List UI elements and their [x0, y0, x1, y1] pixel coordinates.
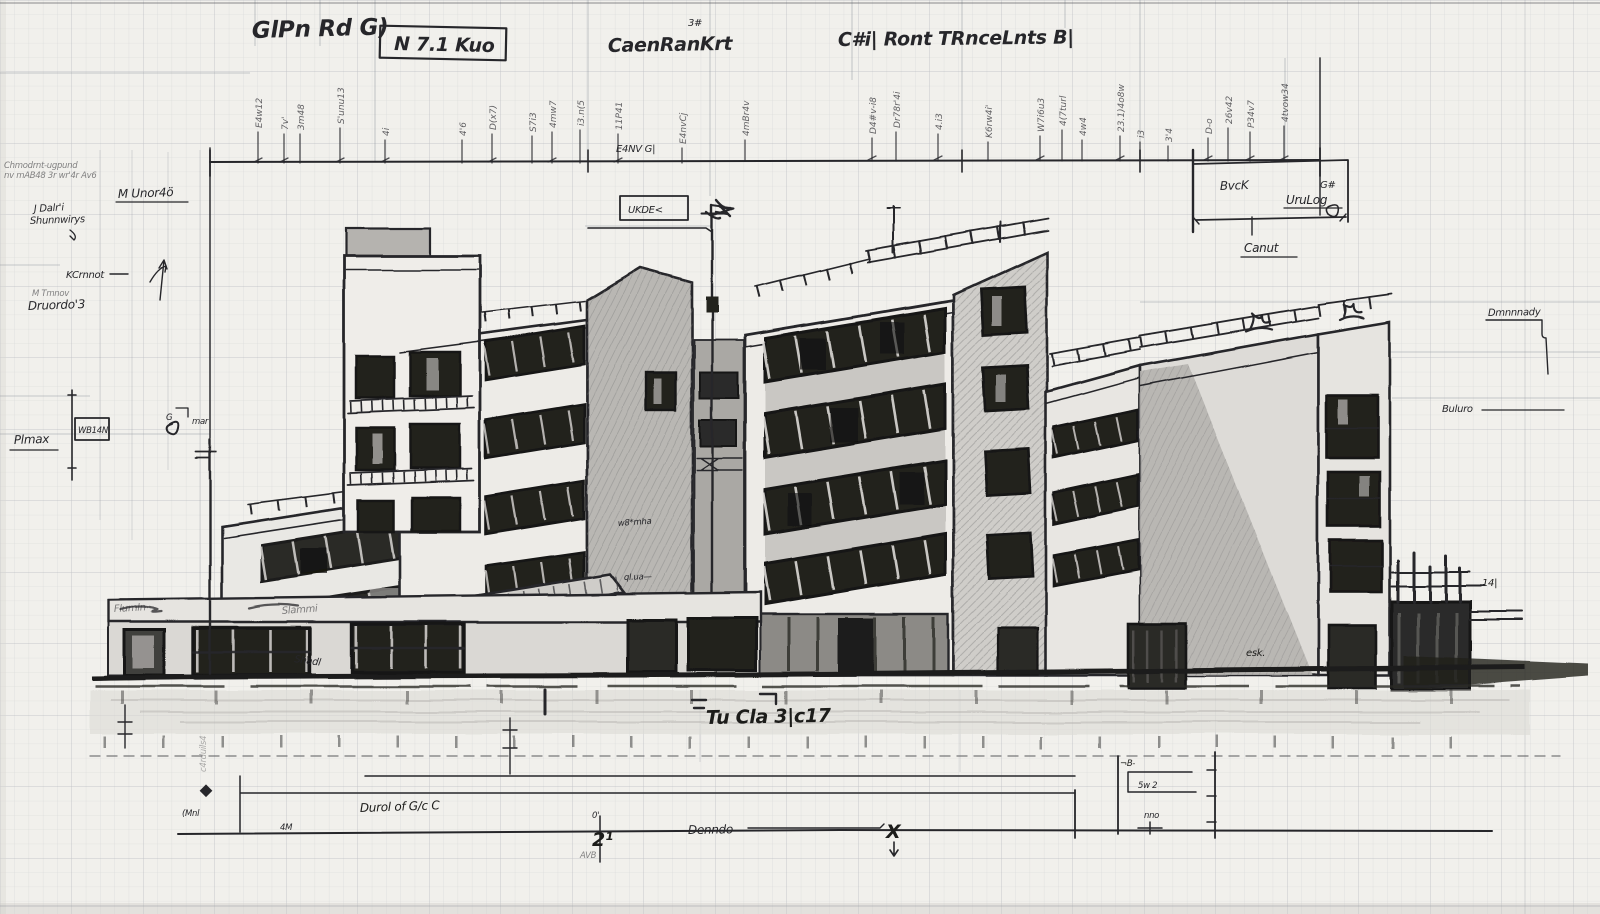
window-pane: [654, 378, 662, 404]
dim-tick-label: W7i6u3: [1037, 97, 1047, 132]
corner-mark: G#: [1320, 180, 1336, 191]
wb-box-mark: G: [166, 413, 173, 423]
x-mark: X: [885, 821, 902, 843]
sheet-title-center: CaenRanKrt: [608, 33, 734, 57]
vertical-scrawl: c4rduils4: [199, 736, 209, 772]
tower-window: [358, 500, 394, 532]
bracket-mark-1: 5w 2: [1138, 781, 1157, 791]
dim-tick-label: E4w12: [255, 98, 265, 128]
plmax-label: Plmax: [14, 432, 51, 447]
dim-tick-label: 4w4: [1079, 117, 1089, 136]
dim-tick-label: 4'6: [459, 122, 469, 136]
dim-tick-label: K6rw4i': [985, 105, 995, 138]
bracket-top-mark: ¬B-: [1120, 759, 1135, 769]
dim-tick-label: 4mBr4v: [742, 100, 752, 136]
window-pane: [372, 434, 382, 464]
window-pane: [992, 296, 1002, 326]
dim-tick-label: 3m48: [297, 104, 307, 130]
zero-mark: 0': [592, 811, 599, 821]
dim-tick-label: 11P41: [615, 102, 625, 130]
canut-label: Canut: [1244, 241, 1280, 255]
building-d-left-windows: [1054, 410, 1138, 586]
dim-tick-label: i3: [1137, 129, 1147, 138]
esk-scrawl: esk.: [1246, 648, 1265, 659]
left-note-line1: Chmodrnt-ugpund: [4, 161, 78, 171]
dim-tick-label: P34v7: [1247, 100, 1257, 128]
e4nvg-label: E4NV G|: [616, 144, 655, 155]
scale-box-label: N 7.1 Kuo: [394, 33, 495, 57]
window-pane: [788, 494, 812, 526]
dim-tick-label: 3'4: [1165, 128, 1175, 142]
sheet-edge-left: [0, 0, 6, 914]
dim-tick-label: i3.n(5: [577, 100, 587, 126]
building-b-tower-windows: [348, 352, 474, 532]
side-door: [998, 628, 1038, 674]
blueprint-sheet: E4w12 7v' 3m48 S'unu13 4i 4'6 D(x7) S7i3…: [0, 0, 1600, 914]
dim-tick-label: S'unu13: [337, 87, 347, 124]
tower-window: [356, 356, 394, 398]
window-pane: [830, 408, 858, 442]
note-box-label: UKDE<: [628, 205, 663, 216]
denndo-label: Denndo: [688, 822, 733, 837]
wb-box-side: mar: [192, 417, 209, 427]
dim-tick-label: 4.i3: [935, 113, 945, 130]
urulog-label: UruLog: [1286, 193, 1328, 207]
dmn-label: Dmnnnady: [1488, 307, 1542, 319]
unit-label: M Unor4ö: [118, 185, 174, 201]
street-label: Tu Cla 3|c17: [706, 705, 832, 729]
side-window: [987, 533, 1033, 579]
dim-tick-label: 4tvow34: [1281, 83, 1291, 122]
signature-line2: Shunnwirys: [30, 214, 85, 227]
bracket-mark-2: nno: [1144, 811, 1159, 821]
wb-box-label: WB14N: [78, 426, 109, 436]
dim-tick-label: D(x7): [489, 105, 499, 130]
dim-tick-label: 26v42: [1225, 95, 1235, 124]
window-pane: [900, 472, 924, 504]
duct-label: Durol of G/c C: [360, 798, 441, 815]
window-pane: [1360, 476, 1370, 496]
dim-tick-label: S7i3: [529, 112, 539, 132]
side-window: [985, 449, 1031, 495]
dim-left-mark: 4M: [280, 823, 293, 833]
sheet-title-right: C#i| Ront TRnceLnts B|: [838, 27, 1074, 51]
qlua-scrawl: ql.ua—: [624, 572, 653, 583]
building-c-door: [838, 618, 874, 674]
buluro-label: Buluro: [1442, 404, 1473, 415]
dim-mid-mark: 2¹: [592, 829, 613, 851]
dim-tick-label: D-o: [1205, 118, 1215, 134]
window-pane: [1338, 400, 1348, 424]
dim-tick-label: Dr78r'4i: [893, 91, 903, 128]
avb-mark: AVB: [579, 851, 597, 861]
building-d-right-windows: [1326, 396, 1382, 592]
sheet-title-center-sup: 3#: [688, 18, 702, 29]
window-pane: [300, 548, 326, 574]
dim-tick-label: 23.1)4o8w: [1117, 83, 1127, 132]
side-window: [1328, 472, 1380, 526]
sheet-edge-bottom: [0, 903, 1600, 914]
flumln-scrawl: Flumln: [114, 602, 146, 615]
dim-tick-label: 4i: [382, 127, 392, 136]
dim-tick-label: 4mw7: [549, 100, 559, 128]
window-pane: [426, 358, 438, 390]
dim-tick-label: D4#v-i8: [869, 97, 879, 134]
gap-unit: [700, 372, 738, 398]
shop-window: [688, 618, 756, 670]
kc-label: KCrnnot: [66, 270, 105, 281]
sheet-title-left: GlPn Rd G): [251, 14, 388, 44]
window-pane: [880, 322, 904, 354]
building-d-door-right: [1328, 626, 1376, 688]
tower-window: [410, 424, 460, 468]
left-note-line2: nv mAB48 3r wr'4r Av6: [4, 171, 97, 181]
mnl-mark: (Mnl: [182, 809, 200, 819]
building-c-side-face: [953, 252, 1047, 675]
dim-tick-label: E4nvCj: [679, 112, 689, 144]
dim-tick-label: 7v': [281, 116, 291, 130]
window-pane: [996, 374, 1006, 402]
door-pane: [132, 636, 154, 668]
side-window: [1326, 396, 1378, 458]
kiosk-mark: 14|: [1482, 578, 1497, 589]
bvck-label: BvcK: [1220, 178, 1251, 193]
dim-tick-label: 4(7turl: [1059, 95, 1069, 126]
window-pane: [800, 338, 826, 370]
tower-window: [412, 497, 460, 531]
signature-line1: J Dalr'i: [32, 202, 65, 215]
shop-door: [628, 620, 676, 672]
side-window: [981, 287, 1027, 335]
pole-box: [706, 296, 718, 312]
gap-unit: [700, 420, 736, 446]
signature2-line2: Druordo'3: [28, 297, 86, 313]
sketch-canvas: E4w12 7v' 3m48 S'unu13 4i 4'6 D(x7) S7i3…: [0, 0, 1600, 914]
